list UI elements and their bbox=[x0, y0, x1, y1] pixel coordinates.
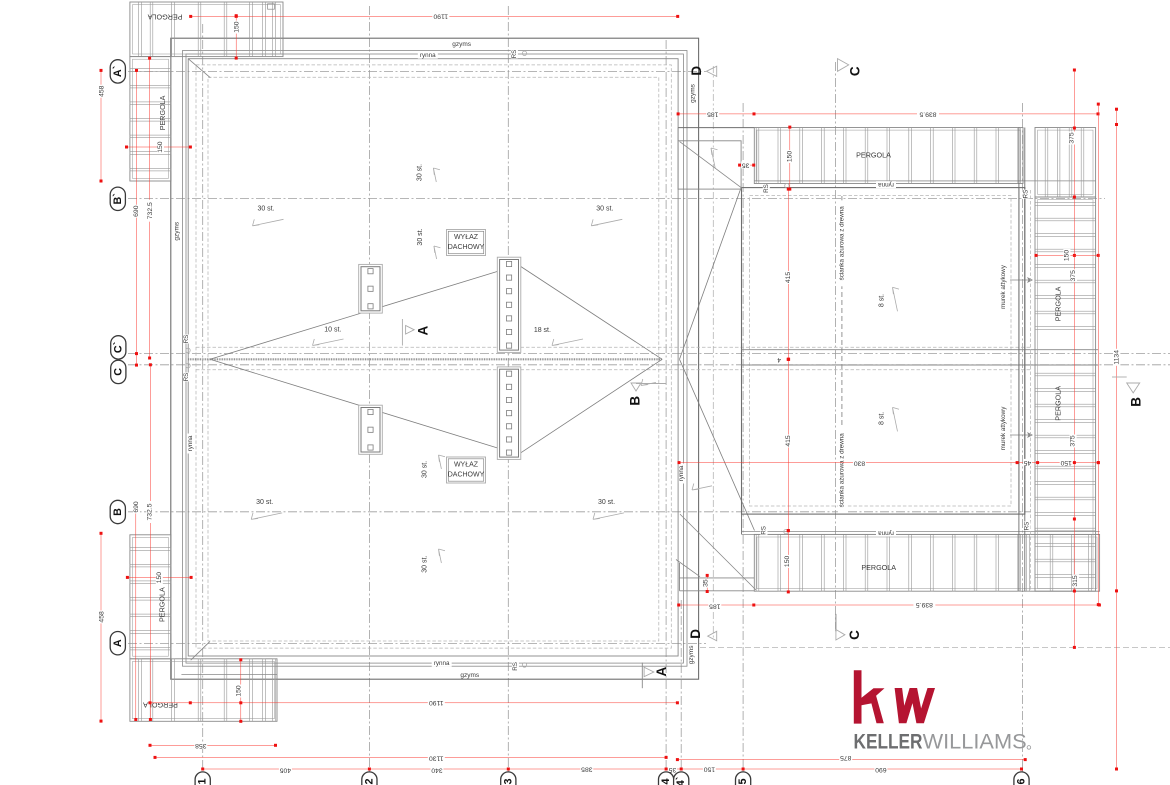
svg-text:340: 340 bbox=[431, 766, 443, 773]
svg-text:185: 185 bbox=[707, 111, 719, 118]
svg-text:C`: C` bbox=[112, 341, 124, 353]
svg-text:C: C bbox=[112, 368, 124, 376]
svg-text:4: 4 bbox=[777, 356, 781, 363]
svg-text:30 st.: 30 st. bbox=[257, 205, 274, 212]
svg-text:732.5: 732.5 bbox=[146, 503, 153, 520]
svg-text:B`: B` bbox=[112, 193, 124, 205]
svg-text:458: 458 bbox=[98, 85, 105, 97]
svg-text:B: B bbox=[112, 508, 124, 516]
svg-text:8 st.: 8 st. bbox=[879, 294, 886, 307]
svg-text:385: 385 bbox=[581, 765, 593, 772]
svg-text:ścianka ażurowa z drewna: ścianka ażurowa z drewna bbox=[838, 206, 845, 281]
svg-text:690: 690 bbox=[133, 205, 140, 217]
svg-text:PERGOLA: PERGOLA bbox=[143, 701, 178, 710]
svg-text:KELLER: KELLER bbox=[854, 730, 923, 753]
svg-text:PERGOLA: PERGOLA bbox=[1053, 386, 1062, 421]
svg-text:WILLIAMS: WILLIAMS bbox=[923, 730, 1027, 753]
svg-text:gzyms: gzyms bbox=[460, 672, 480, 679]
svg-text:PERGOLA: PERGOLA bbox=[148, 13, 183, 22]
svg-text:6: 6 bbox=[1016, 778, 1028, 784]
svg-text:gzyms: gzyms bbox=[174, 221, 181, 241]
svg-text:rynna: rynna bbox=[678, 465, 685, 481]
svg-text:5: 5 bbox=[737, 778, 749, 784]
svg-text:415: 415 bbox=[785, 435, 792, 447]
svg-text:150: 150 bbox=[1060, 459, 1072, 466]
svg-text:458: 458 bbox=[98, 611, 105, 623]
svg-text:375: 375 bbox=[1068, 132, 1075, 144]
svg-text:C: C bbox=[847, 630, 862, 640]
svg-text:C: C bbox=[847, 66, 862, 76]
svg-text:RS: RS bbox=[763, 184, 770, 193]
svg-text:A`: A` bbox=[112, 65, 124, 77]
svg-text:875: 875 bbox=[840, 754, 852, 761]
svg-text:839.5: 839.5 bbox=[916, 601, 933, 608]
svg-text:690: 690 bbox=[875, 766, 887, 773]
svg-text:30 st.: 30 st. bbox=[422, 461, 429, 478]
svg-text:PERGOLA: PERGOLA bbox=[861, 563, 896, 572]
svg-text:30 st.: 30 st. bbox=[416, 164, 423, 181]
svg-text:rynna: rynna bbox=[420, 52, 436, 59]
svg-text:358: 358 bbox=[195, 742, 207, 749]
svg-text:PERGOLA: PERGOLA bbox=[1053, 286, 1062, 321]
svg-text:PERGOLA: PERGOLA bbox=[158, 95, 167, 130]
svg-text:30 st.: 30 st. bbox=[422, 556, 429, 573]
svg-text:1134: 1134 bbox=[1113, 350, 1120, 365]
svg-text:RS: RS bbox=[1023, 522, 1030, 531]
svg-text:415: 415 bbox=[785, 272, 792, 284]
svg-text:B: B bbox=[1129, 397, 1144, 407]
svg-text:150: 150 bbox=[235, 685, 242, 697]
svg-text:RS: RS bbox=[512, 662, 519, 671]
svg-text:30 st.: 30 st. bbox=[256, 499, 273, 506]
svg-text:1190: 1190 bbox=[429, 699, 444, 706]
svg-text:30 st.: 30 st. bbox=[596, 205, 613, 212]
svg-text:1190: 1190 bbox=[433, 13, 448, 20]
svg-text:D: D bbox=[688, 629, 703, 639]
svg-text:1130: 1130 bbox=[429, 755, 444, 762]
svg-text:murek attykowy: murek attykowy bbox=[1000, 264, 1007, 309]
svg-text:gzyms: gzyms bbox=[689, 83, 696, 103]
svg-text:RS: RS bbox=[1023, 190, 1030, 199]
svg-text:WYŁAZ: WYŁAZ bbox=[454, 462, 479, 469]
svg-text:gzyms: gzyms bbox=[688, 645, 695, 665]
svg-text:150: 150 bbox=[1063, 250, 1070, 262]
svg-text:rynna: rynna bbox=[878, 530, 894, 537]
svg-text:3: 3 bbox=[502, 778, 514, 784]
svg-text:375: 375 bbox=[1070, 270, 1077, 282]
svg-text:A: A bbox=[654, 666, 669, 676]
svg-text:150: 150 bbox=[156, 572, 163, 584]
svg-text:rynna: rynna bbox=[878, 181, 894, 188]
svg-text:732.5: 732.5 bbox=[147, 202, 154, 219]
svg-text:150: 150 bbox=[704, 766, 716, 773]
svg-text:RS: RS bbox=[761, 526, 768, 535]
svg-text:RS: RS bbox=[183, 373, 190, 382]
svg-text:A: A bbox=[415, 325, 430, 335]
svg-text:ścianka ażurowa z drewna: ścianka ażurowa z drewna bbox=[838, 433, 845, 508]
svg-text:D: D bbox=[689, 66, 704, 76]
svg-text:4: 4 bbox=[660, 778, 672, 784]
svg-text:150: 150 bbox=[234, 21, 241, 33]
svg-text:830: 830 bbox=[854, 459, 866, 466]
svg-text:murek attykowy: murek attykowy bbox=[1000, 406, 1007, 451]
svg-text:4`: 4` bbox=[675, 776, 687, 785]
svg-text:2: 2 bbox=[363, 778, 375, 784]
svg-text:DACHOWY: DACHOWY bbox=[448, 472, 485, 479]
svg-text:18 st.: 18 st. bbox=[534, 327, 551, 334]
svg-text:B: B bbox=[628, 396, 643, 406]
svg-text:315: 315 bbox=[1072, 575, 1079, 587]
svg-text:10 st.: 10 st. bbox=[324, 327, 341, 334]
svg-text:35: 35 bbox=[702, 579, 709, 587]
svg-text:rynna: rynna bbox=[187, 435, 194, 451]
svg-text:45: 45 bbox=[1024, 459, 1032, 466]
svg-text:rynna: rynna bbox=[434, 660, 450, 667]
svg-text:839.5: 839.5 bbox=[919, 111, 936, 118]
svg-text:DACHOWY: DACHOWY bbox=[448, 244, 485, 251]
svg-text:185: 185 bbox=[709, 602, 721, 609]
svg-text:1: 1 bbox=[197, 778, 209, 784]
svg-text:RS: RS bbox=[183, 335, 190, 344]
svg-text:PERGOLA: PERGOLA bbox=[157, 587, 166, 622]
svg-text:405: 405 bbox=[280, 766, 292, 773]
svg-text:375: 375 bbox=[1070, 435, 1077, 447]
svg-text:gzyms: gzyms bbox=[452, 41, 472, 48]
svg-text:8 st.: 8 st. bbox=[879, 412, 886, 425]
svg-text:150: 150 bbox=[786, 151, 793, 163]
svg-text:RS: RS bbox=[511, 50, 518, 59]
svg-text:35: 35 bbox=[742, 161, 750, 168]
svg-text:690: 690 bbox=[133, 501, 140, 513]
svg-text:WYŁAZ: WYŁAZ bbox=[454, 234, 479, 241]
svg-text:30 st.: 30 st. bbox=[598, 499, 615, 506]
svg-text:150: 150 bbox=[157, 141, 164, 153]
svg-text:30 st.: 30 st. bbox=[417, 228, 424, 245]
svg-text:A: A bbox=[112, 639, 124, 647]
svg-text:PERGOLA: PERGOLA bbox=[856, 151, 891, 160]
svg-text:150: 150 bbox=[784, 556, 791, 568]
